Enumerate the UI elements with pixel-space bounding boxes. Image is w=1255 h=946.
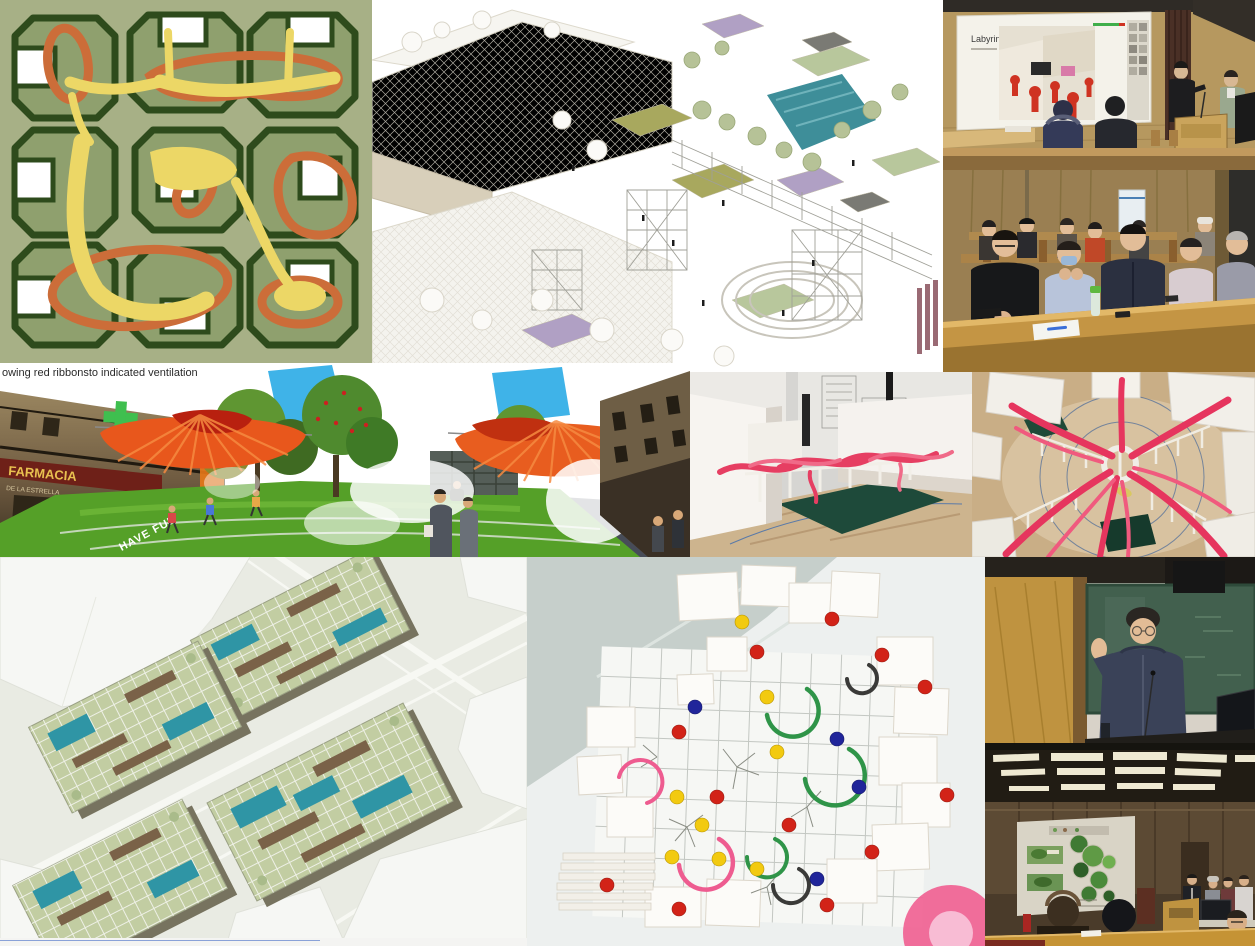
classroom-students-photo <box>943 170 1255 372</box>
slide-model-photo <box>999 26 1095 120</box>
ribbon-model-side-drawing <box>690 372 972 557</box>
axon-masterplan-drawing <box>372 0 943 372</box>
pin-model-top-drawing <box>527 557 985 946</box>
street-panorama-render: owing red ribbonsto indicated ventilatio… <box>0 363 690 557</box>
urban-blocks-drawing <box>0 557 527 946</box>
lecture-hall-review-photo <box>985 750 1255 946</box>
professor-lecture-photo <box>985 557 1255 750</box>
speaker-box <box>1173 561 1225 593</box>
axon-masterplan-render <box>372 0 943 372</box>
desk-edge <box>985 743 1255 750</box>
curtain-strip <box>1137 888 1155 924</box>
video-call-thumbnails <box>1127 20 1149 120</box>
bottom-strip <box>0 938 527 946</box>
laptop-screen <box>1235 92 1255 144</box>
colonnade <box>917 280 938 354</box>
mustard-panel <box>985 577 1077 750</box>
panel-frame <box>1073 577 1087 750</box>
site-plan-drawing <box>0 0 372 363</box>
urban-blocks-render <box>0 557 527 946</box>
studio-collage: Labyrinth <box>0 0 1255 946</box>
ribbon-model-top-photo <box>972 372 1255 557</box>
site-plan-diagram <box>0 0 372 363</box>
ribbon-model-top-drawing <box>972 372 1255 557</box>
red-thermos <box>1023 914 1031 932</box>
ribbon-model-side-photo <box>690 372 972 557</box>
street-panorama-drawing: owing red ribbonsto indicated ventilatio… <box>0 363 690 557</box>
classroom-students-drawing <box>943 170 1255 372</box>
caption-text: owing red ribbonsto indicated ventilatio… <box>2 367 198 379</box>
pin-model-top-photo <box>527 557 985 946</box>
review-monitor <box>1201 900 1231 920</box>
classroom-presentation-photo: Labyrinth <box>943 0 1255 170</box>
lecture-hall-review-drawing <box>985 750 1255 946</box>
professor-lecture-drawing <box>985 557 1255 750</box>
classroom-presentation-drawing: Labyrinth <box>943 0 1255 170</box>
